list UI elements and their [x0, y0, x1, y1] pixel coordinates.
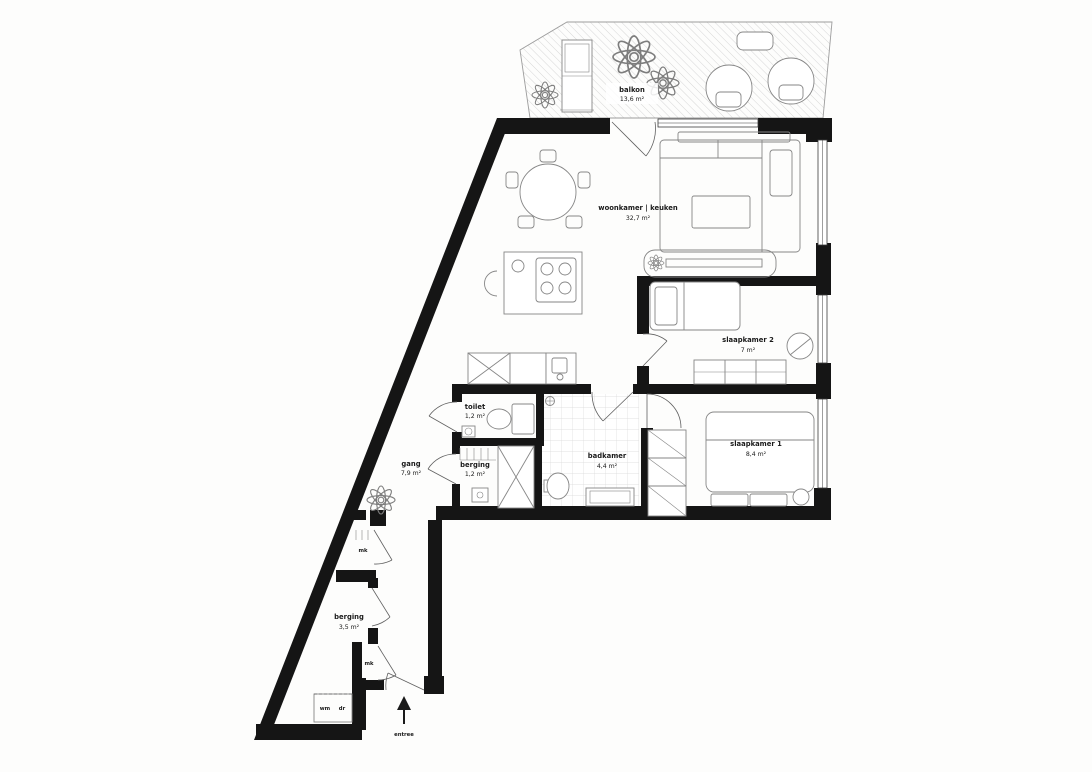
bathtub-unit — [586, 488, 634, 506]
window — [818, 295, 827, 363]
room-area-slaapkamer1: 8,4 m² — [746, 451, 767, 458]
room-label-gang: gang — [401, 460, 420, 468]
bedroom2-furniture — [650, 282, 813, 384]
closet — [510, 353, 546, 384]
balcony-cabinet — [560, 40, 594, 112]
window — [818, 399, 827, 488]
door-balcony — [612, 122, 656, 156]
door-storage-lower — [372, 588, 390, 626]
hall-closets — [468, 353, 576, 384]
bedside-stool — [793, 489, 809, 505]
room-label-berging: berging — [460, 461, 490, 469]
wardrobe — [648, 430, 686, 516]
tv-sideboard — [644, 250, 776, 277]
wardrobe — [694, 360, 786, 384]
room-area-balkon: 13,6 m² — [620, 96, 645, 103]
tall-closet — [498, 446, 534, 508]
room-label-berging2: berging — [334, 613, 364, 621]
plant-icon — [648, 255, 664, 271]
hand-basin — [462, 426, 475, 437]
label-wm: wm — [320, 706, 331, 712]
dining-chair — [506, 172, 518, 188]
door-storage-small — [428, 454, 456, 484]
armchair — [787, 333, 813, 359]
toilet-bowl — [487, 409, 511, 429]
room-label-slaapkamer2: slaapkamer 2 — [722, 336, 774, 344]
door-bedroom2 — [643, 334, 667, 366]
floor-plan-drawing: balkon 13,6 m² woonkamer | keuken 32,7 m… — [0, 0, 1092, 772]
floorplan-page: balkon 13,6 m² woonkamer | keuken 32,7 m… — [0, 0, 1092, 772]
door-bedroom1 — [647, 394, 681, 428]
door-entrance — [386, 673, 424, 690]
room-area-toilet: 1,2 m² — [465, 413, 486, 420]
room-area-berging: 1,2 m² — [465, 471, 486, 478]
door-meter-cupboard-top — [374, 530, 392, 564]
balcony-area — [520, 22, 832, 118]
meter-cupboard-top-ticks — [356, 530, 368, 540]
room-area-woonkamer: 32,7 m² — [626, 215, 651, 222]
door-toilet — [429, 402, 457, 432]
room-label-balkon: balkon — [619, 86, 645, 94]
pillow — [750, 494, 787, 506]
room-label-toilet: toilet — [465, 403, 486, 411]
label-dr: dr — [339, 706, 346, 712]
label-mk-bottom: mk — [364, 661, 374, 667]
label-entree: entree — [394, 732, 414, 738]
room-area-slaapkamer2: 7 m² — [741, 347, 756, 354]
bar-stool — [484, 271, 497, 296]
bedroom1-furniture — [648, 412, 814, 516]
dining-set — [506, 150, 590, 228]
shower-drain — [546, 397, 555, 406]
window — [658, 119, 758, 127]
plant-icon — [367, 486, 395, 514]
room-label-slaapkamer1: slaapkamer 1 — [730, 440, 782, 448]
room-label-woonkamer: woonkamer | keuken — [598, 204, 678, 213]
kitchen-island — [484, 252, 582, 314]
sofa — [660, 132, 800, 252]
dining-chair — [578, 172, 590, 188]
balcony-lounge-chair — [768, 58, 814, 104]
single-bed — [650, 282, 740, 330]
dining-chair — [540, 150, 556, 162]
dining-table — [520, 164, 576, 220]
room-area-badkamer: 4,4 m² — [597, 463, 618, 470]
window — [818, 140, 827, 245]
entrance-arrow — [397, 696, 411, 724]
dining-chair — [518, 216, 534, 228]
pillow — [711, 494, 748, 506]
coffee-table — [692, 196, 750, 228]
balcony-side-table — [737, 32, 773, 50]
room-area-berging2: 3,5 m² — [339, 624, 360, 631]
label-mk-top: mk — [358, 548, 368, 554]
room-area-gang: 7,9 m² — [401, 470, 422, 477]
cistern — [512, 404, 534, 434]
room-label-badkamer: badkamer — [588, 452, 627, 460]
balcony-lounge-chair — [706, 65, 752, 111]
dining-chair — [566, 216, 582, 228]
